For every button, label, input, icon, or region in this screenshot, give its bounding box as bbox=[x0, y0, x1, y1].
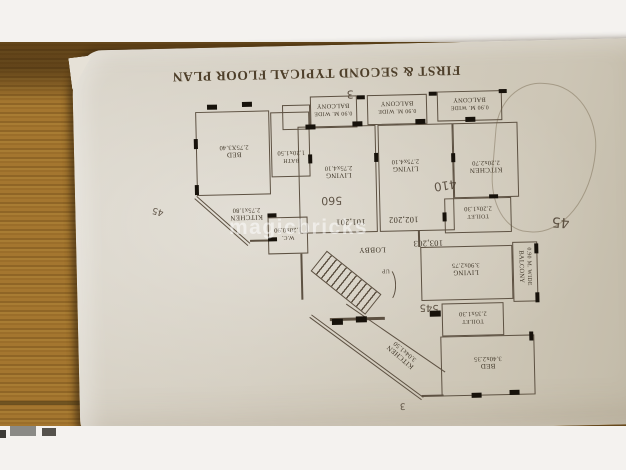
living-3-label: LIVING3.90x2.75 bbox=[431, 260, 501, 277]
wall-marker bbox=[430, 311, 441, 317]
wall-marker bbox=[510, 390, 520, 395]
wall-marker bbox=[535, 292, 539, 302]
photo-bottom-border bbox=[0, 426, 626, 470]
lobby-label: LOBBY bbox=[342, 244, 402, 254]
wall-marker bbox=[194, 139, 198, 149]
bed-1-label: BED2.75X3.40 bbox=[203, 142, 265, 159]
wall-marker bbox=[451, 153, 455, 162]
wall-marker bbox=[242, 102, 252, 107]
paper-corner-fold bbox=[68, 55, 96, 90]
wall-marker bbox=[308, 154, 312, 163]
unit-102-202: 102,202 bbox=[374, 214, 434, 225]
wall-marker bbox=[374, 153, 378, 162]
wall-marker bbox=[195, 185, 199, 195]
wall-marker bbox=[529, 331, 533, 340]
wall-marker bbox=[472, 393, 482, 398]
unit-103-203: 103,203 bbox=[398, 237, 458, 248]
wall-corridor bbox=[418, 231, 420, 247]
wall-marker bbox=[534, 243, 538, 253]
kitchen-3-label: KITCHEN3.04x1.50 bbox=[371, 325, 434, 382]
wall-marker bbox=[357, 95, 365, 99]
photo-of-floor-plan: FIRST & SECOND TYPICAL FLOOR PLAN 3 0.90… bbox=[0, 0, 626, 470]
wall-marker bbox=[429, 92, 437, 96]
wall-marker bbox=[415, 119, 425, 124]
wall-marker bbox=[207, 105, 217, 110]
bottom-left-artifact bbox=[42, 428, 56, 436]
wall-marker bbox=[465, 117, 475, 122]
wall-marker bbox=[305, 124, 315, 129]
balcony-3-label: 0.90 M. WIDEBALCONY bbox=[437, 95, 502, 111]
bath-label: BATH1.20x1.50 bbox=[272, 148, 310, 163]
wall-marker bbox=[489, 194, 498, 198]
wall-marker bbox=[442, 212, 446, 221]
toilet-2-label: TOILET2.35x1.30 bbox=[442, 309, 504, 325]
plan-title: FIRST & SECOND TYPICAL FLOOR PLAN bbox=[166, 62, 466, 85]
wall-marker bbox=[356, 316, 367, 322]
handwritten-560: 560 bbox=[321, 194, 342, 207]
floor-plan-drawing: FIRST & SECOND TYPICAL FLOOR PLAN 3 0.90… bbox=[145, 29, 626, 445]
living-2-label: LIVING2.75x4.10 bbox=[370, 157, 440, 174]
handwritten-mark-bottom: 3 bbox=[400, 400, 406, 410]
balcony-1-label: 0.90 M. WIDEBALCONY bbox=[307, 101, 359, 116]
living-1-label: LIVING2.75x4.10 bbox=[303, 163, 373, 180]
bottom-left-artifact bbox=[10, 426, 36, 436]
pencil-sketch-outline bbox=[487, 79, 601, 237]
bed-2-label: BED3.40x2.35 bbox=[453, 354, 523, 371]
balcony-side-label: 0.90 M. WIDEBALCONY bbox=[517, 237, 532, 297]
wall-kitchen-3-end bbox=[422, 395, 444, 397]
handwritten-45-left: 45 bbox=[151, 205, 165, 218]
stair-direction-arc bbox=[379, 268, 397, 302]
watermark-text: magicbricks bbox=[229, 216, 368, 240]
balcony-2-label: 0.90 M. WIDEBALCONY bbox=[367, 99, 427, 114]
wall-marker bbox=[499, 89, 507, 93]
wall-marker bbox=[352, 121, 362, 126]
bottom-left-artifact bbox=[0, 430, 6, 438]
wall-stair-left bbox=[300, 254, 303, 300]
wall-marker bbox=[332, 319, 343, 325]
